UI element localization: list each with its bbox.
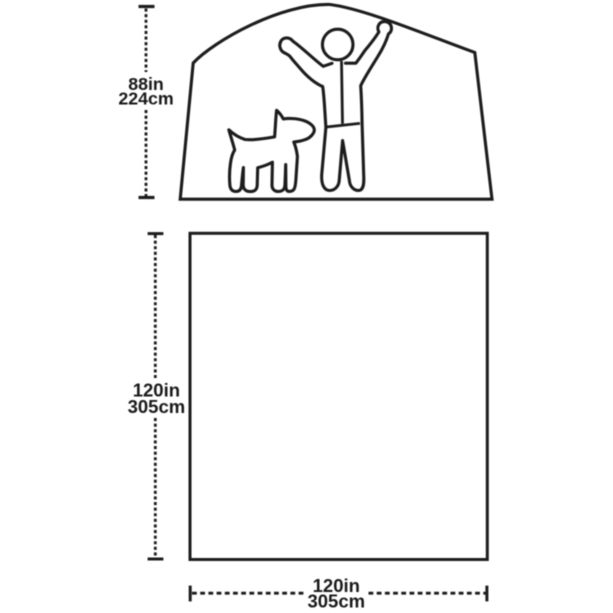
svg-text:305cm: 305cm [128,396,186,417]
svg-text:305cm: 305cm [307,591,365,612]
svg-text:224cm: 224cm [118,89,173,109]
